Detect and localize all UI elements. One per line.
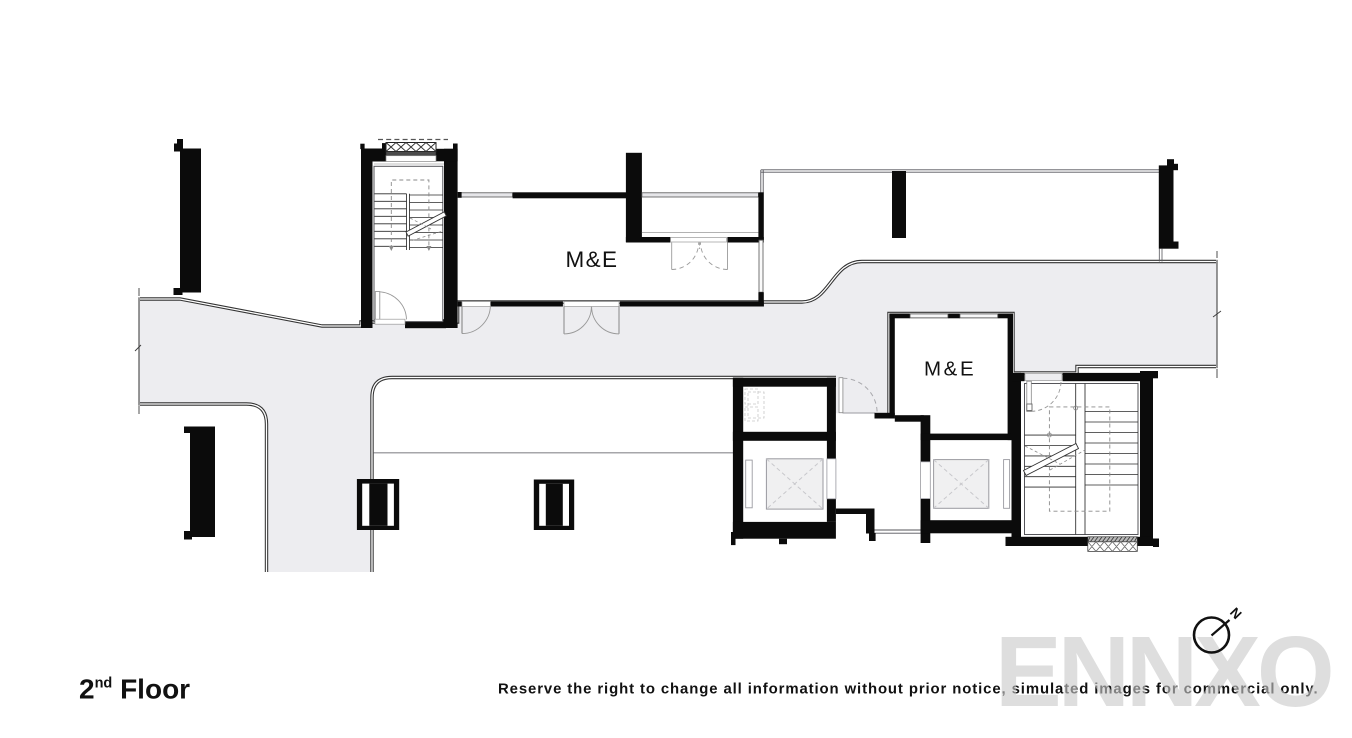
svg-text:ENNXO: ENNXO <box>995 616 1331 728</box>
svg-text:M&E: M&E <box>924 357 976 380</box>
svg-text:M&E: M&E <box>566 247 619 272</box>
